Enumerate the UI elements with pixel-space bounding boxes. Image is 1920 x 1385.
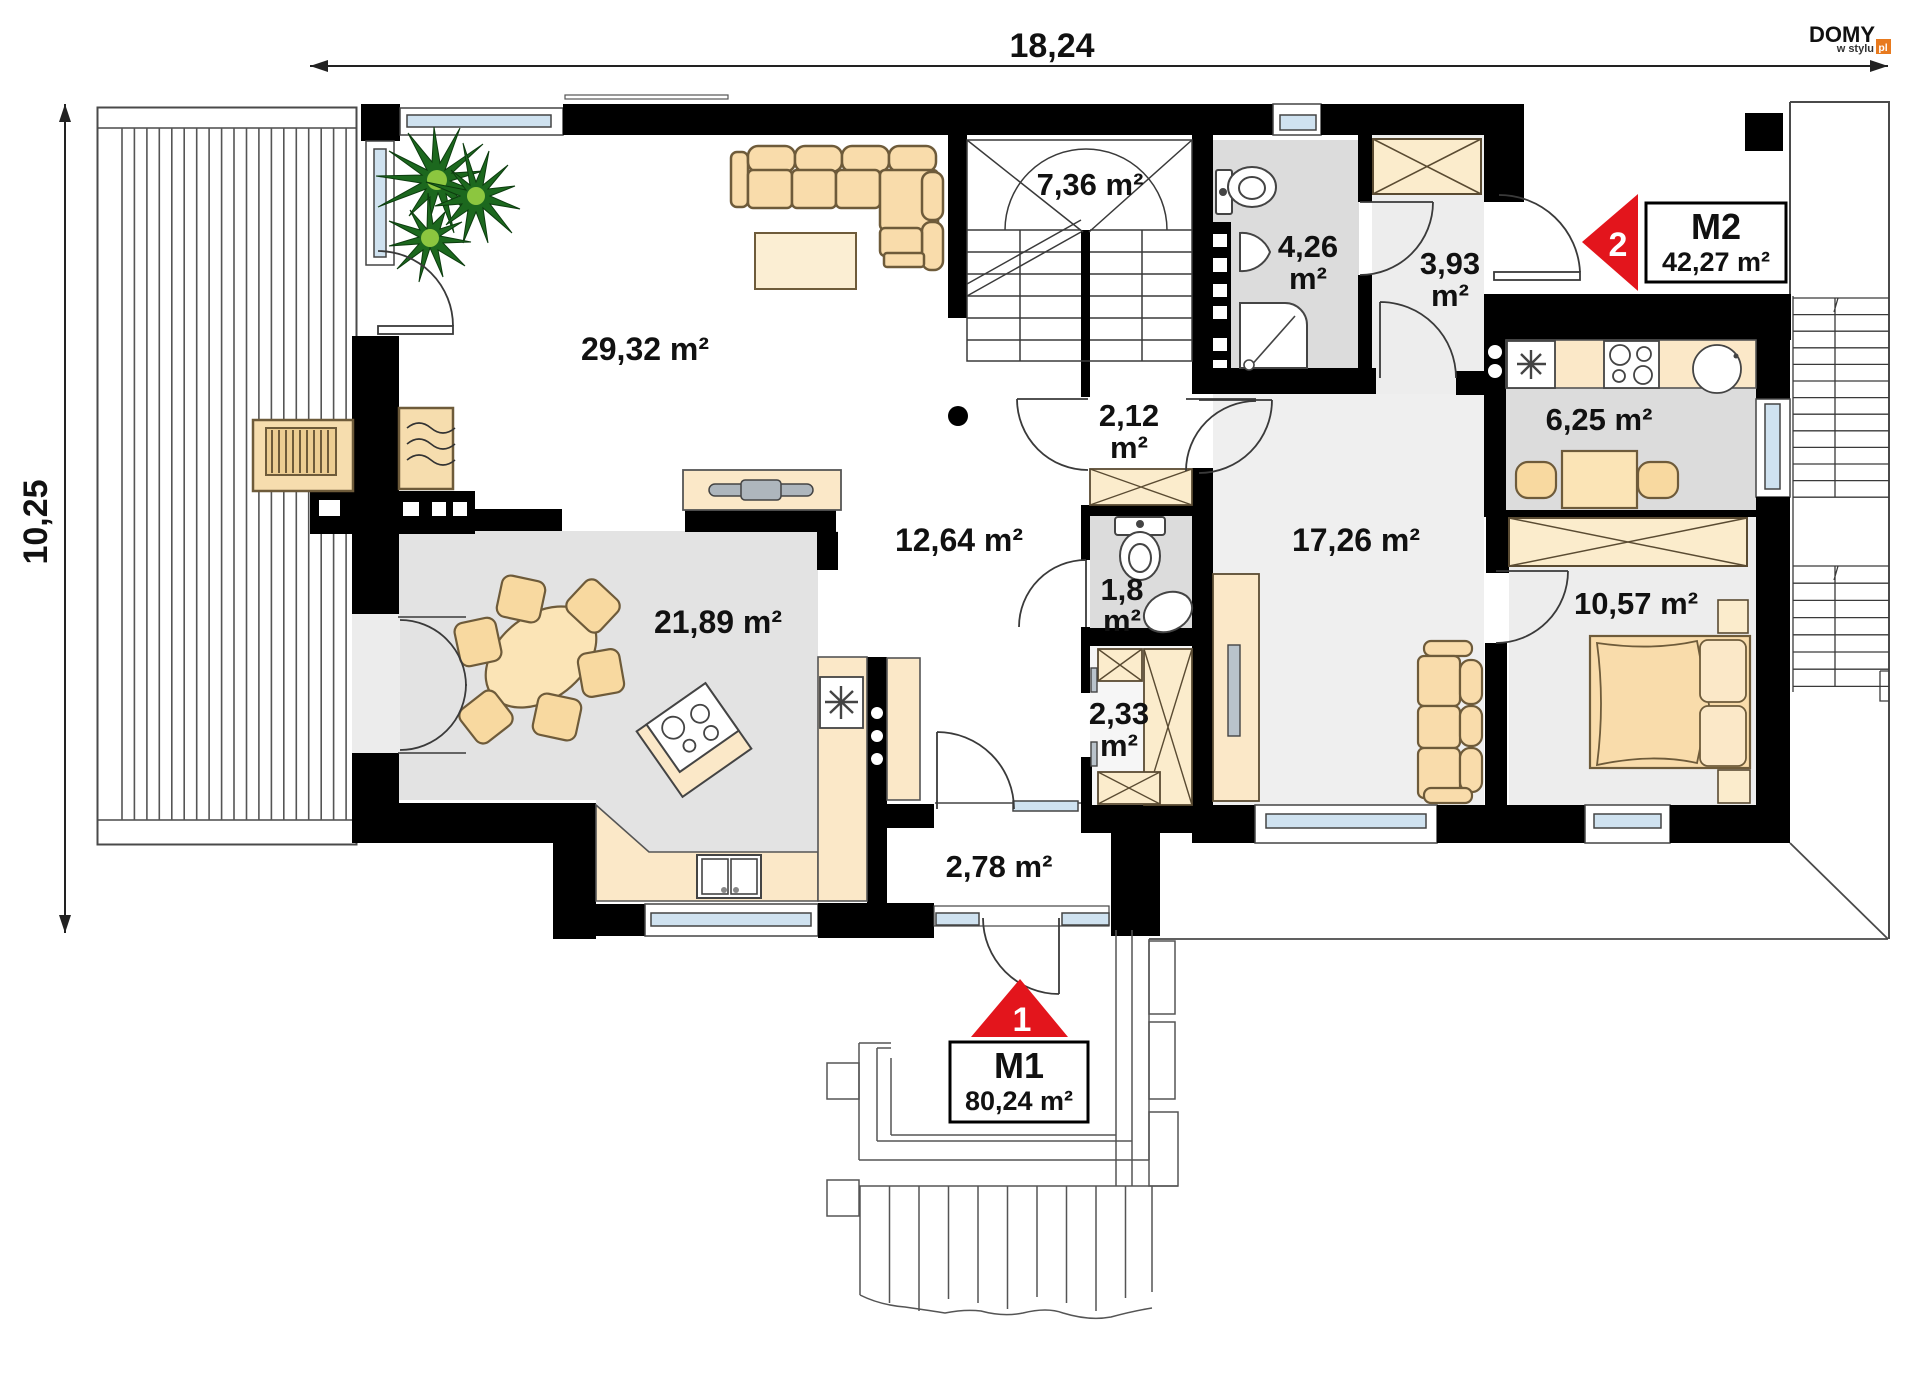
svg-text:21,89 m²: 21,89 m² — [654, 604, 782, 640]
svg-text:10,57 m²: 10,57 m² — [1574, 586, 1698, 621]
svg-text:6,25 m²: 6,25 m² — [1546, 402, 1653, 437]
svg-text:18,24: 18,24 — [1009, 27, 1094, 65]
svg-text:2,33: 2,33 — [1089, 696, 1149, 731]
svg-text:1,8: 1,8 — [1100, 572, 1143, 607]
svg-text:m²: m² — [1431, 278, 1469, 313]
svg-text:M1: M1 — [994, 1045, 1044, 1086]
svg-text:m²: m² — [1100, 728, 1138, 763]
svg-text:10,25: 10,25 — [17, 479, 55, 564]
svg-text:w stylu: w stylu — [1836, 43, 1874, 55]
svg-text:80,24 m²: 80,24 m² — [965, 1086, 1073, 1116]
svg-text:2,78 m²: 2,78 m² — [946, 849, 1053, 884]
svg-text:12,64 m²: 12,64 m² — [895, 522, 1023, 558]
svg-text:1: 1 — [1013, 1001, 1032, 1039]
svg-text:M2: M2 — [1691, 206, 1741, 247]
svg-text:pl: pl — [1878, 42, 1887, 54]
svg-text:m²: m² — [1289, 261, 1327, 296]
svg-text:42,27 m²: 42,27 m² — [1662, 247, 1770, 277]
svg-text:17,26 m²: 17,26 m² — [1292, 522, 1420, 558]
svg-text:2: 2 — [1609, 226, 1628, 264]
svg-text:m²: m² — [1110, 430, 1148, 465]
svg-text:29,32 m²: 29,32 m² — [581, 331, 709, 367]
svg-text:7,36 m²: 7,36 m² — [1037, 167, 1144, 202]
svg-text:2,12: 2,12 — [1099, 398, 1159, 433]
svg-text:m²: m² — [1103, 603, 1141, 638]
svg-text:3,93: 3,93 — [1420, 246, 1480, 281]
svg-text:4,26: 4,26 — [1278, 229, 1338, 264]
